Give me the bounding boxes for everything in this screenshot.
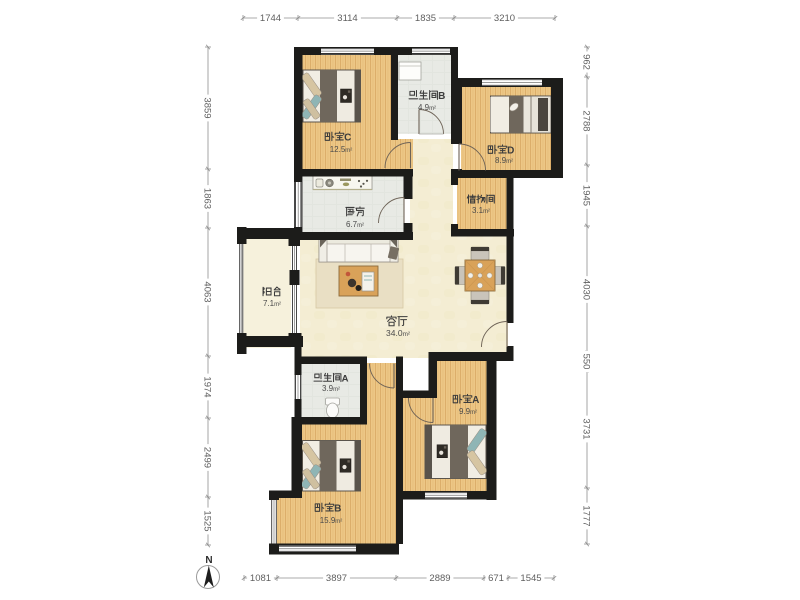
svg-text:1945: 1945 [580,185,591,206]
svg-text:4030: 4030 [580,279,591,300]
svg-text:C: C [344,132,351,143]
svg-text:A: A [472,395,479,406]
svg-text:671: 671 [488,573,504,584]
svg-text:1545: 1545 [520,573,541,584]
svg-text:3859: 3859 [201,97,212,118]
svg-text:B: B [334,503,341,514]
svg-text:2788: 2788 [580,110,591,131]
svg-text:1525: 1525 [201,510,212,531]
svg-text:3210: 3210 [494,13,515,24]
svg-text:A: A [342,373,349,384]
svg-text:1744: 1744 [260,13,281,24]
svg-text:1863: 1863 [201,188,212,209]
svg-text:2499: 2499 [201,447,212,468]
svg-text:1974: 1974 [201,376,212,397]
svg-text:1835: 1835 [415,13,436,24]
svg-text:3114: 3114 [337,13,357,24]
svg-text:962: 962 [580,54,591,70]
svg-text:1081: 1081 [250,573,271,584]
svg-text:B: B [438,91,445,102]
svg-text:550: 550 [580,354,591,370]
svg-text:1777: 1777 [580,505,591,526]
svg-text:3731: 3731 [580,418,591,439]
svg-text:2889: 2889 [429,573,450,584]
svg-text:N: N [205,555,212,566]
svg-text:4063: 4063 [201,281,212,302]
svg-text:D: D [507,145,514,156]
svg-text:3897: 3897 [326,573,347,584]
